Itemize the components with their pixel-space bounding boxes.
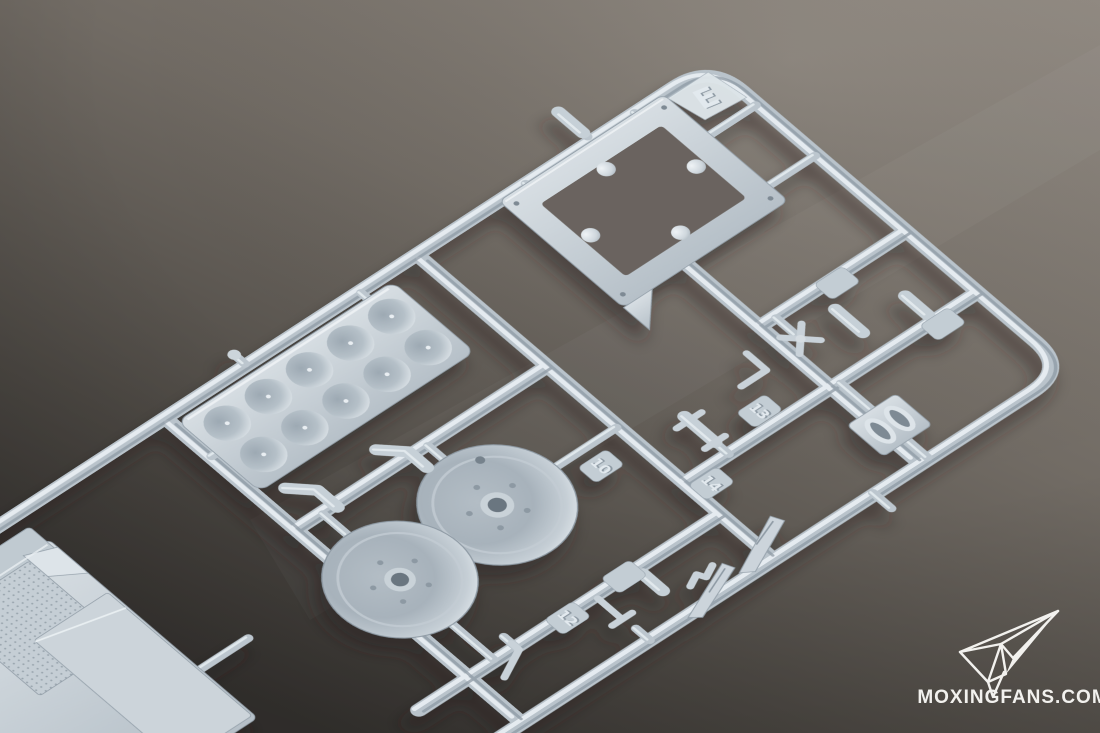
- photo-canvas: 10 10 12 12 13 13 14 14 E E: [0, 0, 1100, 733]
- watermark-text: MOXINGFANS.COM: [917, 687, 1100, 708]
